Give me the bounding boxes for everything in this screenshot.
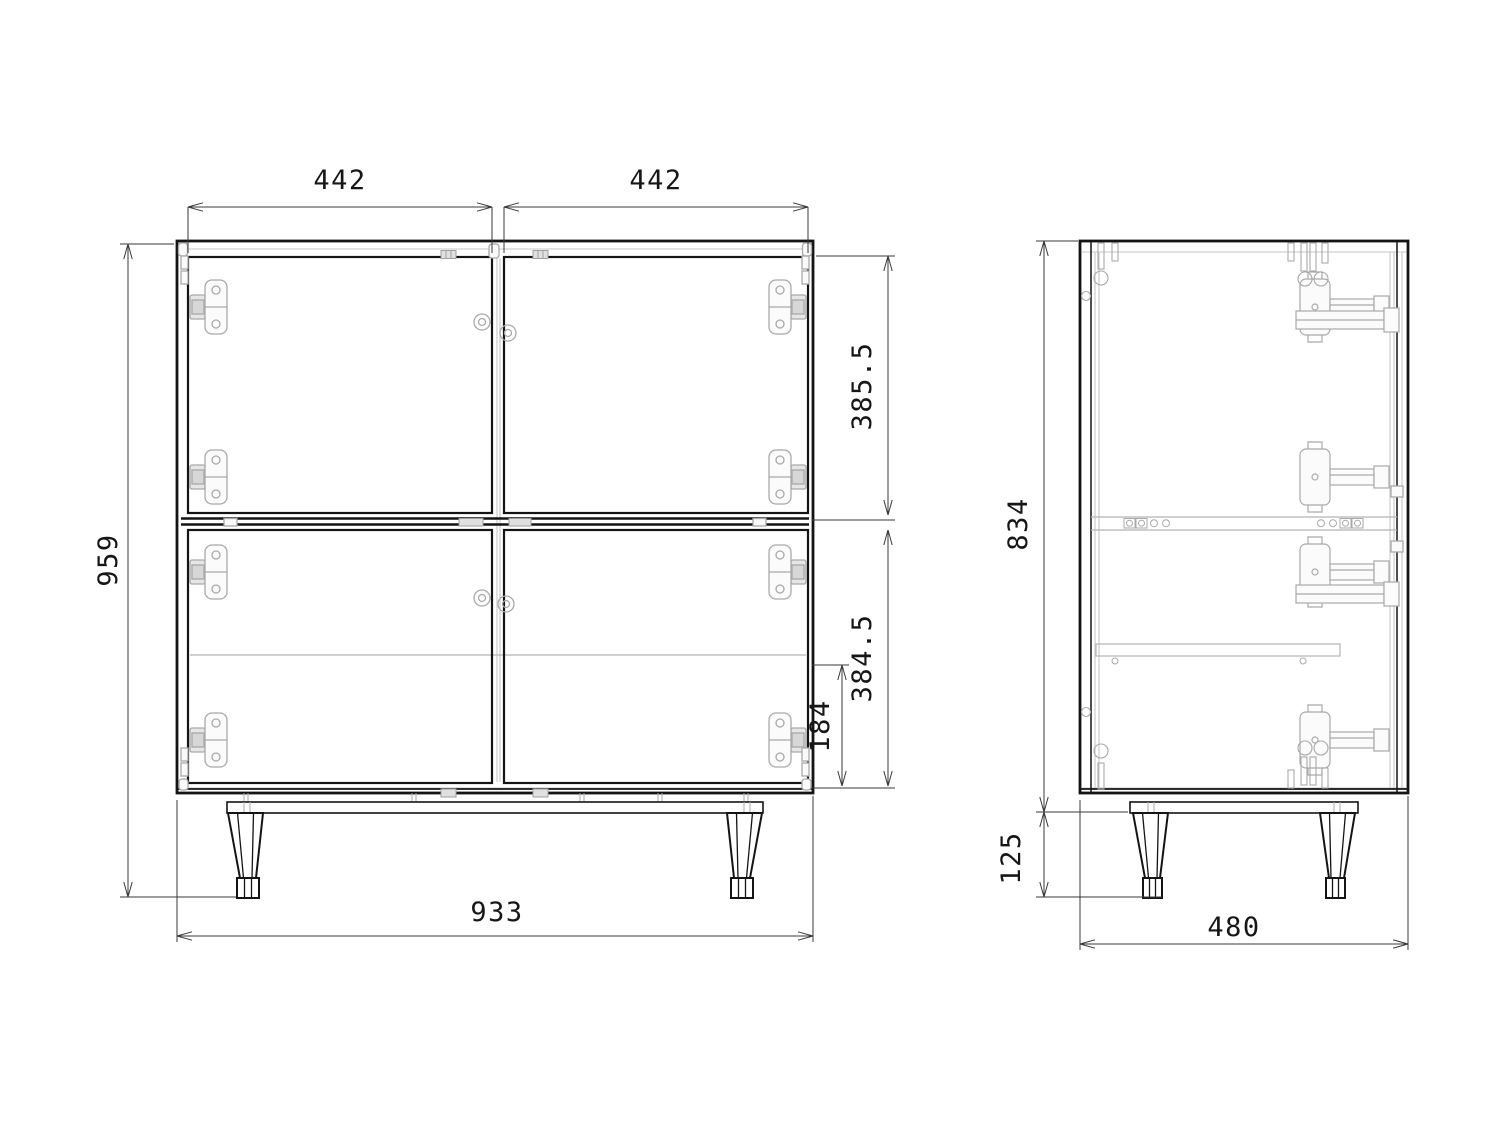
hinge-icon bbox=[190, 545, 227, 599]
front-view bbox=[177, 241, 813, 898]
hinge-icon bbox=[1300, 442, 1389, 512]
hinge-icon bbox=[190, 713, 227, 767]
hinge-bracket bbox=[1296, 582, 1399, 606]
side-shelf bbox=[1096, 644, 1340, 664]
side-view bbox=[1080, 241, 1408, 898]
dim-door-width-left: 442 bbox=[313, 165, 366, 196]
hinge-icon bbox=[190, 280, 227, 334]
side-middle-rail bbox=[1091, 517, 1397, 530]
hinge-icon bbox=[190, 450, 227, 504]
technical-drawing-sheet: 442 442 959 385.5 384.5 184 933 834 125 … bbox=[0, 0, 1500, 1125]
side-left-leg bbox=[1133, 813, 1168, 898]
dim-bottom-section-height: 384.5 bbox=[847, 614, 878, 703]
dim-top-section-height: 385.5 bbox=[847, 342, 878, 431]
side-bottom-pins bbox=[1082, 708, 1329, 790]
door-bottom-right bbox=[504, 530, 808, 783]
dim-door-width-right: 442 bbox=[629, 165, 682, 196]
dim-body-height: 834 bbox=[1003, 497, 1034, 550]
dim-overall-width: 933 bbox=[470, 897, 523, 928]
door-top-right bbox=[504, 257, 808, 513]
front-carcass bbox=[177, 241, 813, 793]
door-knobs bbox=[474, 314, 516, 612]
side-plinth-dowels bbox=[1148, 802, 1340, 813]
side-plinth-rail bbox=[1130, 802, 1358, 813]
cabinet-drawing: 442 442 959 385.5 384.5 184 933 834 125 … bbox=[0, 0, 1500, 1125]
front-left-leg bbox=[228, 813, 263, 898]
hinge-bracket bbox=[1296, 308, 1399, 332]
door-top-left bbox=[188, 257, 492, 513]
hinge-icon bbox=[1300, 705, 1389, 775]
dim-leg-height: 125 bbox=[996, 831, 1027, 884]
plinth-dowels bbox=[244, 802, 750, 813]
front-fittings bbox=[179, 243, 812, 802]
hinge-icon bbox=[769, 713, 806, 767]
dim-shelf-to-bottom: 184 bbox=[805, 699, 836, 752]
front-plinth-rail bbox=[227, 802, 763, 813]
dimension-labels: 442 442 959 385.5 384.5 184 933 834 125 … bbox=[93, 165, 1261, 943]
side-right-leg bbox=[1320, 813, 1355, 898]
hinge-icon bbox=[769, 280, 806, 334]
door-bottom-left bbox=[188, 530, 492, 783]
dim-overall-height: 959 bbox=[93, 533, 124, 586]
hinge-icon bbox=[769, 545, 806, 599]
hinge-icon bbox=[1300, 272, 1389, 342]
front-right-leg bbox=[727, 813, 762, 898]
dim-depth: 480 bbox=[1207, 912, 1260, 943]
side-hinges bbox=[1296, 272, 1403, 775]
hinge-icon bbox=[769, 450, 806, 504]
